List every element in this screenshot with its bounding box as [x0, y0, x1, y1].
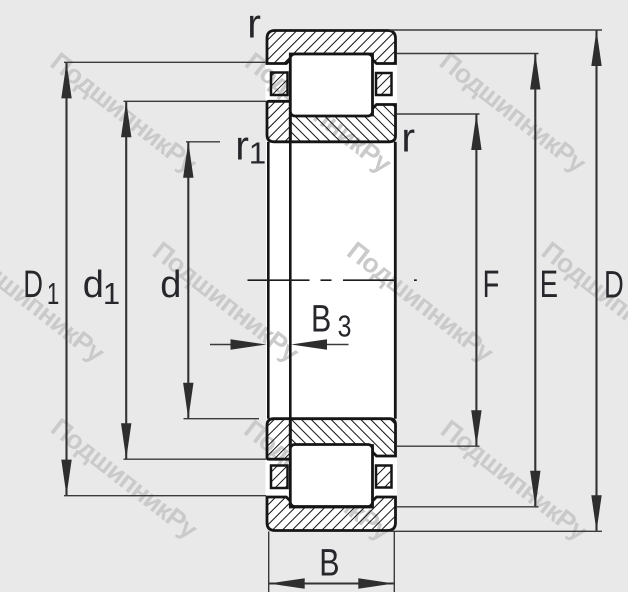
- svg-text:B: B: [319, 542, 339, 584]
- svg-text:E: E: [540, 264, 558, 306]
- svg-text:F: F: [483, 264, 500, 306]
- svg-text:D: D: [604, 264, 624, 306]
- svg-text:r: r: [247, 0, 261, 46]
- svg-text:d: d: [160, 264, 181, 306]
- svg-text:r: r: [401, 115, 415, 161]
